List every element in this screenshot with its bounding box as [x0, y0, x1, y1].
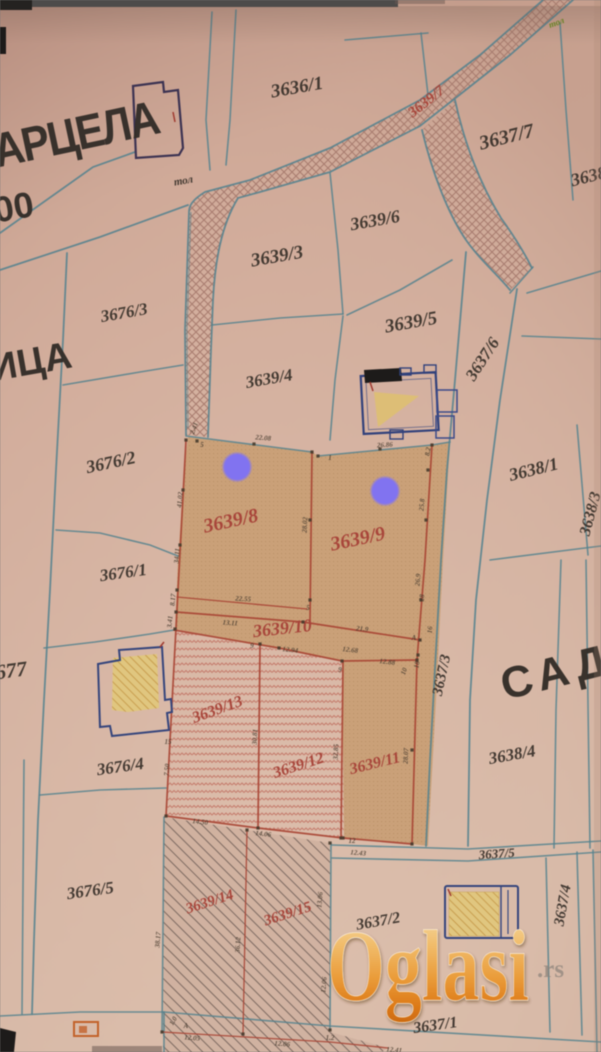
- svg-text:26.86: 26.86: [376, 440, 394, 449]
- svg-text:A: A: [183, 1022, 189, 1030]
- svg-text:36.12: 36.12: [234, 936, 243, 954]
- svg-text:22.08: 22.08: [254, 433, 272, 442]
- svg-text:41.02: 41.02: [175, 491, 184, 509]
- svg-text:38.17: 38.17: [153, 931, 162, 949]
- svg-text:15: 15: [165, 738, 173, 746]
- svg-text:12.88: 12.88: [379, 657, 396, 667]
- svg-text:12.05: 12.05: [184, 1033, 201, 1042]
- svg-text:12.94: 12.94: [282, 645, 299, 655]
- svg-text:.rs: .rs: [537, 956, 564, 983]
- svg-text:22.55: 22.55: [234, 594, 252, 603]
- svg-text:21.9: 21.9: [355, 624, 370, 633]
- svg-text:25.8: 25.8: [417, 498, 426, 512]
- svg-text:1: 1: [328, 454, 332, 462]
- svg-text:30.81: 30.81: [251, 729, 260, 746]
- svg-text:14.50: 14.50: [192, 817, 209, 827]
- svg-text:12.68: 12.68: [342, 645, 359, 655]
- svg-text:5: 5: [200, 441, 204, 449]
- svg-text:13.06: 13.06: [315, 891, 324, 908]
- svg-text:9: 9: [250, 642, 254, 650]
- svg-text:12.06: 12.06: [274, 1039, 291, 1048]
- svg-text:34.11: 34.11: [172, 548, 181, 565]
- svg-text:26.9: 26.9: [413, 573, 422, 587]
- svg-text:14.06: 14.06: [255, 829, 272, 839]
- svg-text:13.11: 13.11: [222, 618, 238, 627]
- svg-text:12.43: 12.43: [350, 848, 367, 857]
- svg-text:12.41: 12.41: [386, 1045, 402, 1052]
- svg-text:28.02: 28.02: [301, 516, 310, 534]
- svg-text:5: 5: [306, 604, 310, 612]
- svg-text:7.50: 7.50: [162, 763, 171, 776]
- svg-text:3.41: 3.41: [165, 615, 174, 629]
- svg-text:3637/5: 3637/5: [477, 845, 516, 863]
- svg-text:8.17: 8.17: [168, 593, 177, 606]
- svg-text:32.85: 32.85: [332, 743, 341, 761]
- svg-text:12: 12: [349, 837, 357, 845]
- svg-text:A: A: [411, 634, 417, 642]
- svg-text:1.2: 1.2: [326, 1034, 335, 1042]
- svg-text:16: 16: [426, 625, 435, 633]
- svg-text:Oglasi: Oglasi: [327, 910, 529, 1023]
- svg-text:9: 9: [338, 666, 342, 674]
- svg-text:28.07: 28.07: [402, 747, 411, 765]
